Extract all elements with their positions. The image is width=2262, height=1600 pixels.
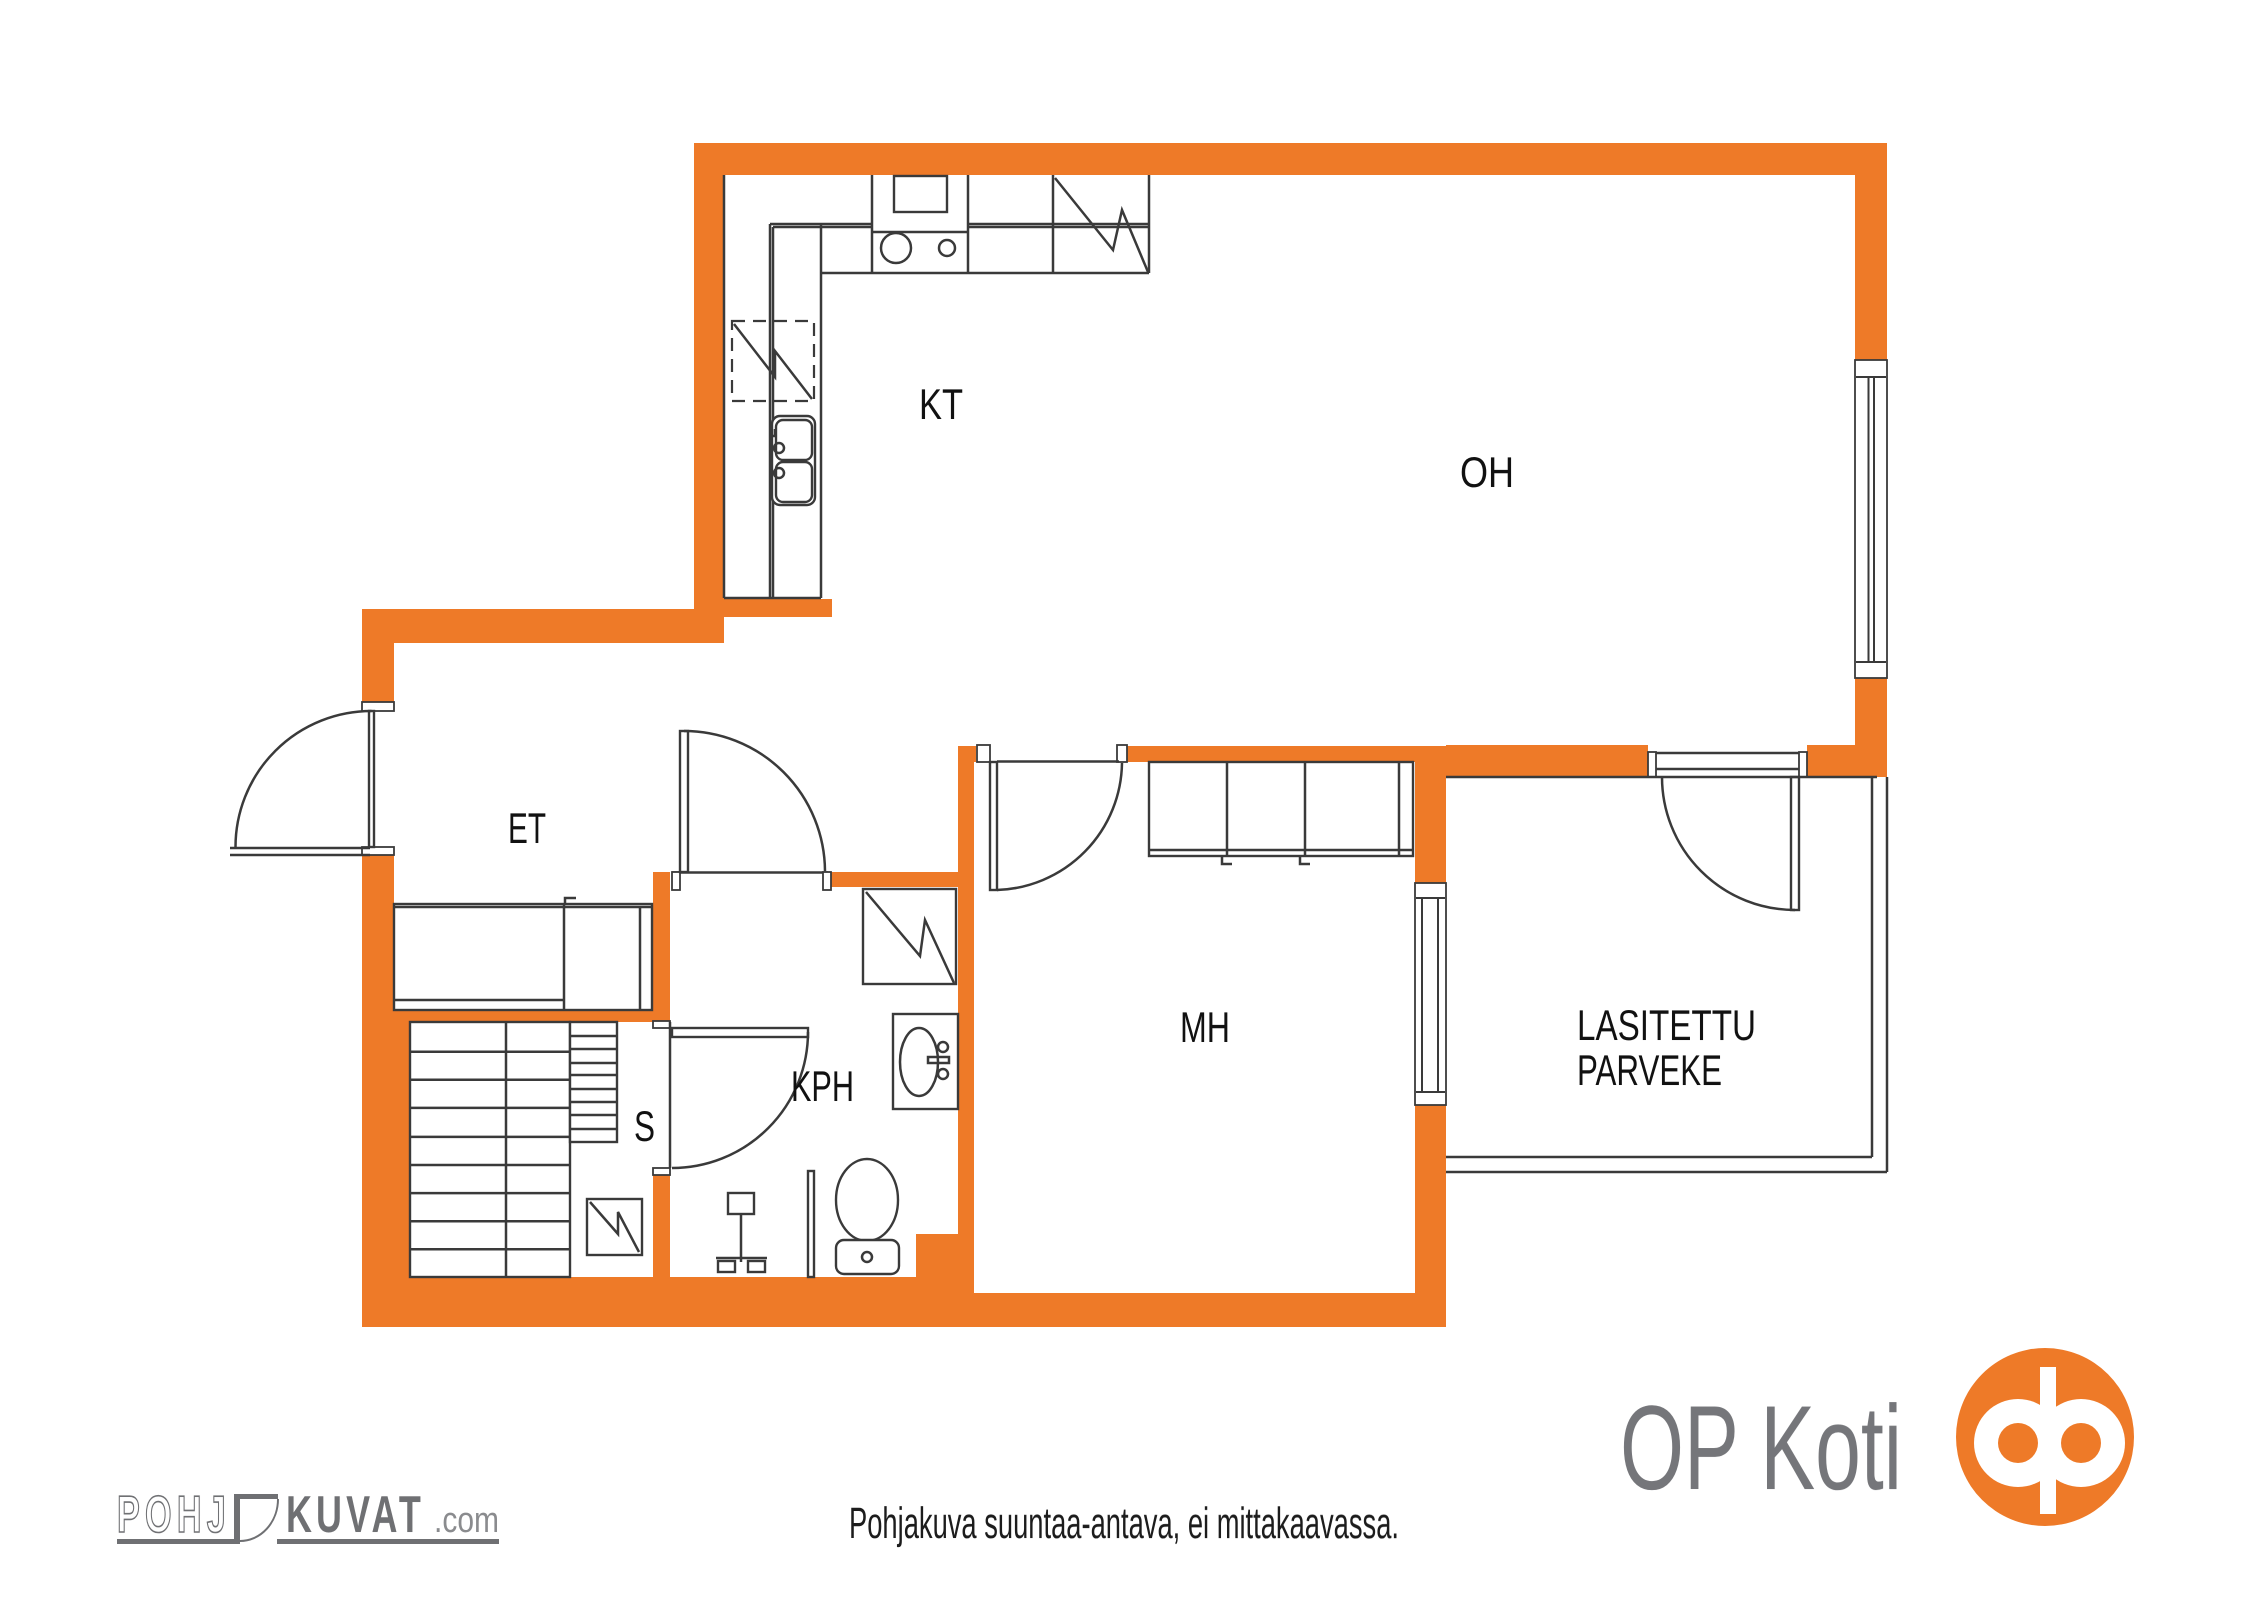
svg-text:KUVAT: KUVAT [286, 1486, 425, 1544]
svg-text:.com: .com [434, 1499, 499, 1540]
svg-text:LASITETTU: LASITETTU [1577, 1002, 1756, 1050]
svg-text:S: S [634, 1103, 655, 1151]
svg-text:ET: ET [508, 805, 546, 853]
svg-text:KT: KT [919, 381, 963, 429]
svg-text:Pohjakuva suuntaa-antava, ei m: Pohjakuva suuntaa-antava, ei mittakaavas… [849, 1499, 1399, 1548]
svg-text:PARVEKE: PARVEKE [1577, 1047, 1722, 1095]
svg-text:OH: OH [1460, 449, 1514, 497]
svg-text:MH: MH [1180, 1004, 1230, 1052]
svg-text:KPH: KPH [791, 1063, 854, 1111]
svg-text:OP Koti: OP Koti [1620, 1381, 1902, 1515]
svg-text:POHJ: POHJ [117, 1486, 231, 1544]
